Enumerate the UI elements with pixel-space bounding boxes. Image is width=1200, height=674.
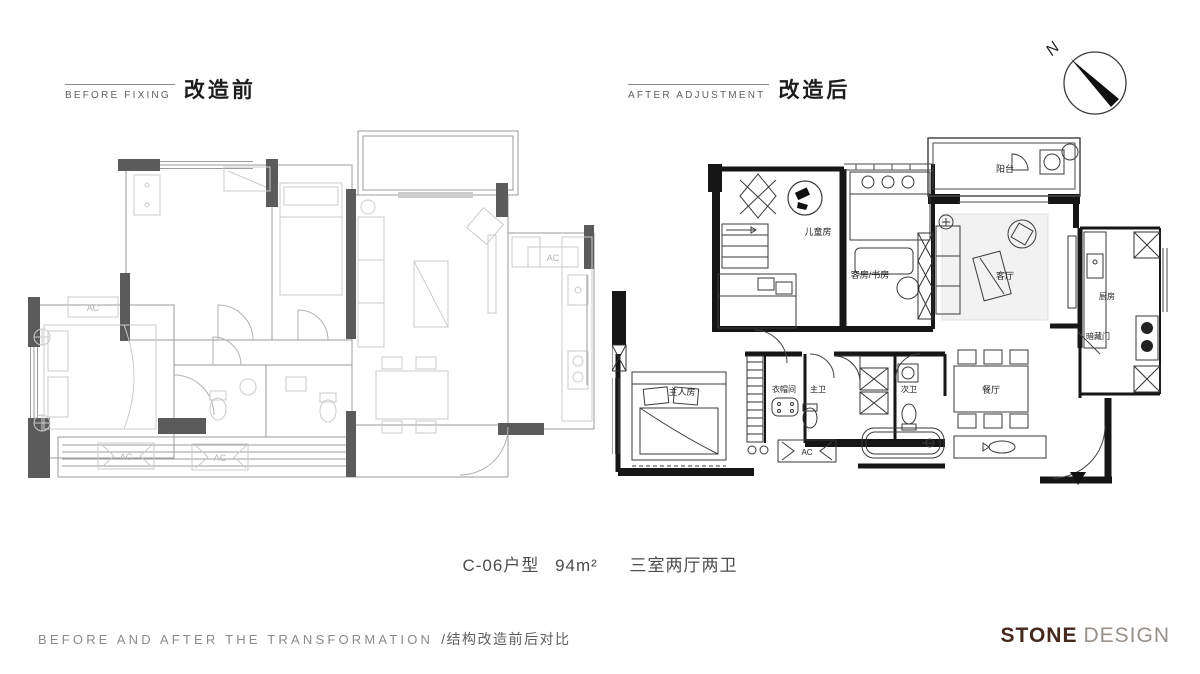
play-tent-icon: [740, 174, 776, 218]
compass-n-label: N: [1043, 39, 1064, 60]
ac-label: AC: [120, 452, 133, 462]
console-icon: [954, 436, 1046, 458]
before-floor-plan: AC AC AC AC: [28, 125, 600, 485]
plant-icon: [361, 200, 375, 214]
footer-title-en: BEFORE AND AFTER THE TRANSFORMATION: [38, 632, 433, 647]
room-label-guest-study: 客房/书房: [851, 269, 890, 280]
plant-icon: [1012, 154, 1028, 170]
toilet-icon: [320, 400, 336, 422]
room-label-second-bath: 次卫: [901, 384, 917, 394]
room-label-living: 客厅: [996, 270, 1014, 281]
after-tag-zh: 改造后: [778, 80, 850, 101]
before-plan-tag: BEFORE FIXING 改造前: [65, 80, 256, 101]
bed-icon: [280, 183, 342, 295]
footer-title: BEFORE AND AFTER THE TRANSFORMATION/结构改造…: [38, 629, 571, 649]
after-tag-en: AFTER ADJUSTMENT: [628, 84, 769, 101]
stone-design-logo: STONEDESIGN: [1001, 623, 1170, 648]
layout-label: 三室两厅两卫: [630, 556, 738, 575]
ac-label: AC: [801, 448, 812, 457]
sink-icon: [240, 379, 256, 395]
unit-type-label: C-06户型: [462, 556, 539, 575]
ac-label: AC: [547, 253, 560, 263]
sink-icon: [286, 377, 306, 391]
room-label-hidden-door: 暗藏门: [1086, 331, 1110, 341]
room-label-balcony: 阳台: [996, 163, 1014, 174]
play-zone-icon: [788, 181, 822, 215]
tv-cabinet-icon: [1068, 236, 1076, 308]
before-tag-en: BEFORE FIXING: [65, 84, 175, 101]
after-plan-tag: AFTER ADJUSTMENT 改造后: [628, 80, 850, 101]
footer-title-zh: /结构改造前后对比: [441, 631, 570, 647]
before-wall-blocks: [28, 159, 594, 478]
kitchen-sink-icon: [1087, 254, 1103, 278]
ac-label: AC: [87, 303, 100, 313]
before-tag-zh: 改造前: [184, 80, 256, 101]
tv-cabinet-icon: [488, 235, 496, 313]
ac-label: AC: [214, 453, 227, 463]
stool-icon: [772, 398, 798, 416]
sofa-icon: [358, 217, 384, 347]
logo-design: DESIGN: [1083, 624, 1170, 647]
room-label-children: 儿童房: [804, 226, 831, 237]
shower-icon: [834, 356, 860, 382]
room-label-cloakroom: 衣帽间: [772, 384, 796, 394]
before-labels: AC AC AC AC: [87, 253, 560, 463]
room-label-master-bath: 主卫: [810, 384, 826, 394]
stove-icon: [568, 351, 588, 389]
bed-icon: [632, 372, 726, 460]
desk-chair-icon: [897, 277, 919, 299]
fish-decor-icon: [989, 441, 1015, 453]
area-label: 94m²: [555, 556, 598, 575]
fridge-icon: [512, 237, 540, 267]
kitchen-counter-icon: [1084, 232, 1106, 348]
slide: BEFORE FIXING 改造前 AFTER ADJUSTMENT 改造后 N: [0, 0, 1200, 674]
kitchen-sink-icon: [568, 275, 588, 305]
logo-stone: STONE: [1001, 624, 1078, 647]
dresser-icon: [134, 175, 160, 215]
rug: [942, 214, 1048, 320]
toilet-icon: [902, 404, 916, 424]
after-walls-thick: [618, 164, 1160, 480]
after-floor-plan: 儿童房 客房/书房 阳台 客厅 厨房 暗藏门 主人房 衣帽间 主卫 次卫 餐厅 …: [612, 136, 1168, 488]
room-label-master: 主人房: [668, 386, 695, 397]
room-label-kitchen: 厨房: [1099, 291, 1115, 301]
dining-table-icon: [376, 371, 448, 419]
before-doors: [174, 305, 508, 475]
plan-caption: C-06户型 94m² 三室两厅两卫: [0, 551, 1200, 576]
toilet-icon: [210, 398, 226, 420]
north-compass-icon: N: [1038, 28, 1148, 124]
room-label-dining: 餐厅: [982, 384, 1000, 395]
